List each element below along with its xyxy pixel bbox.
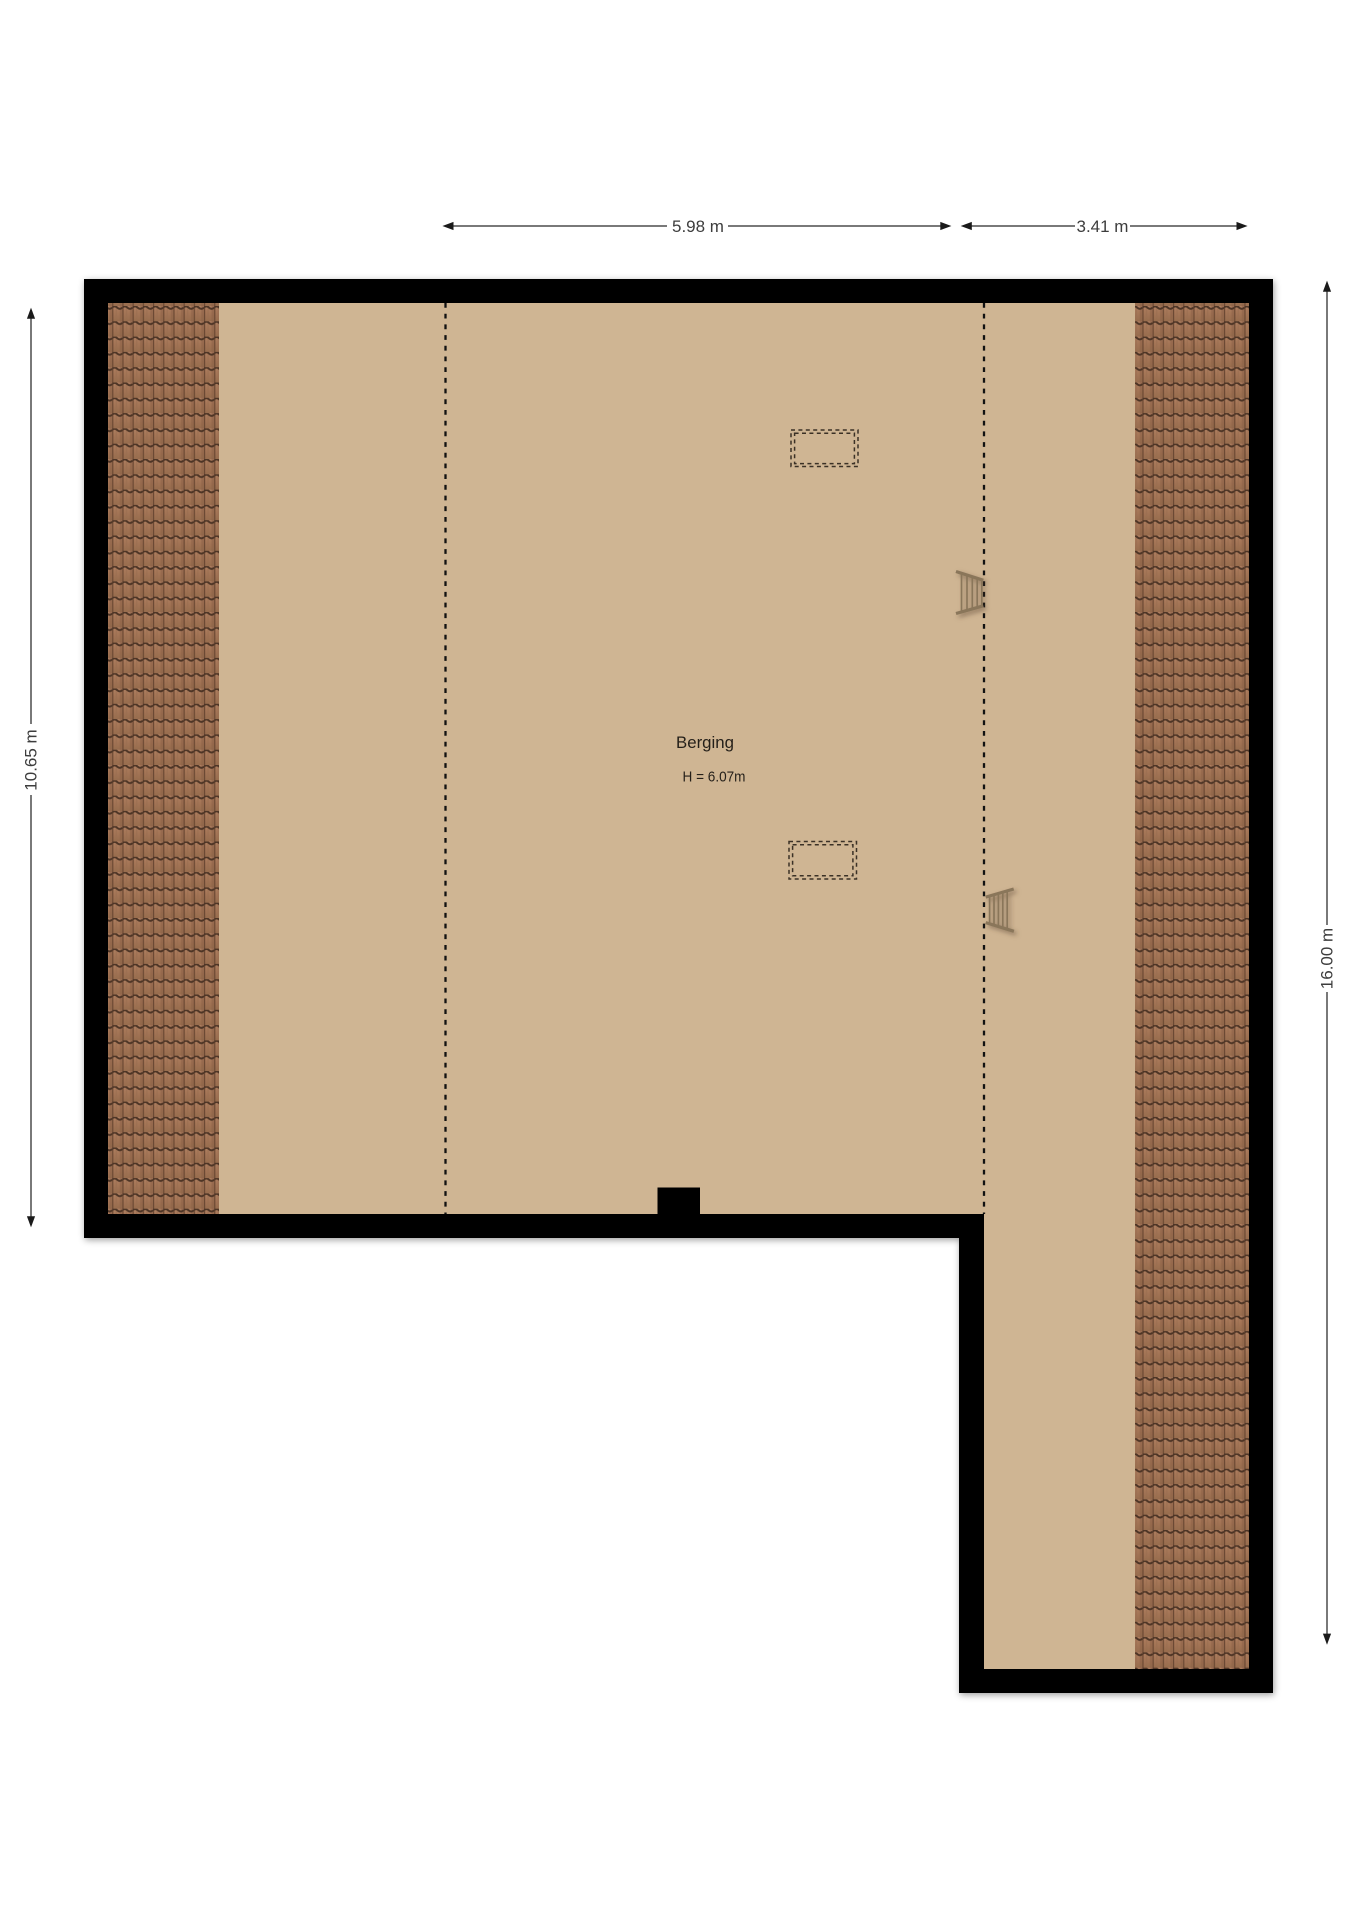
svg-text:Berging: Berging [676, 734, 734, 752]
svg-text:3.41 m: 3.41 m [1077, 217, 1129, 236]
svg-text:5.98 m: 5.98 m [672, 217, 724, 236]
svg-text:10.65 m: 10.65 m [22, 729, 41, 790]
svg-text:16.00 m: 16.00 m [1318, 928, 1337, 989]
svg-text:H = 6.07m: H = 6.07m [683, 769, 746, 786]
